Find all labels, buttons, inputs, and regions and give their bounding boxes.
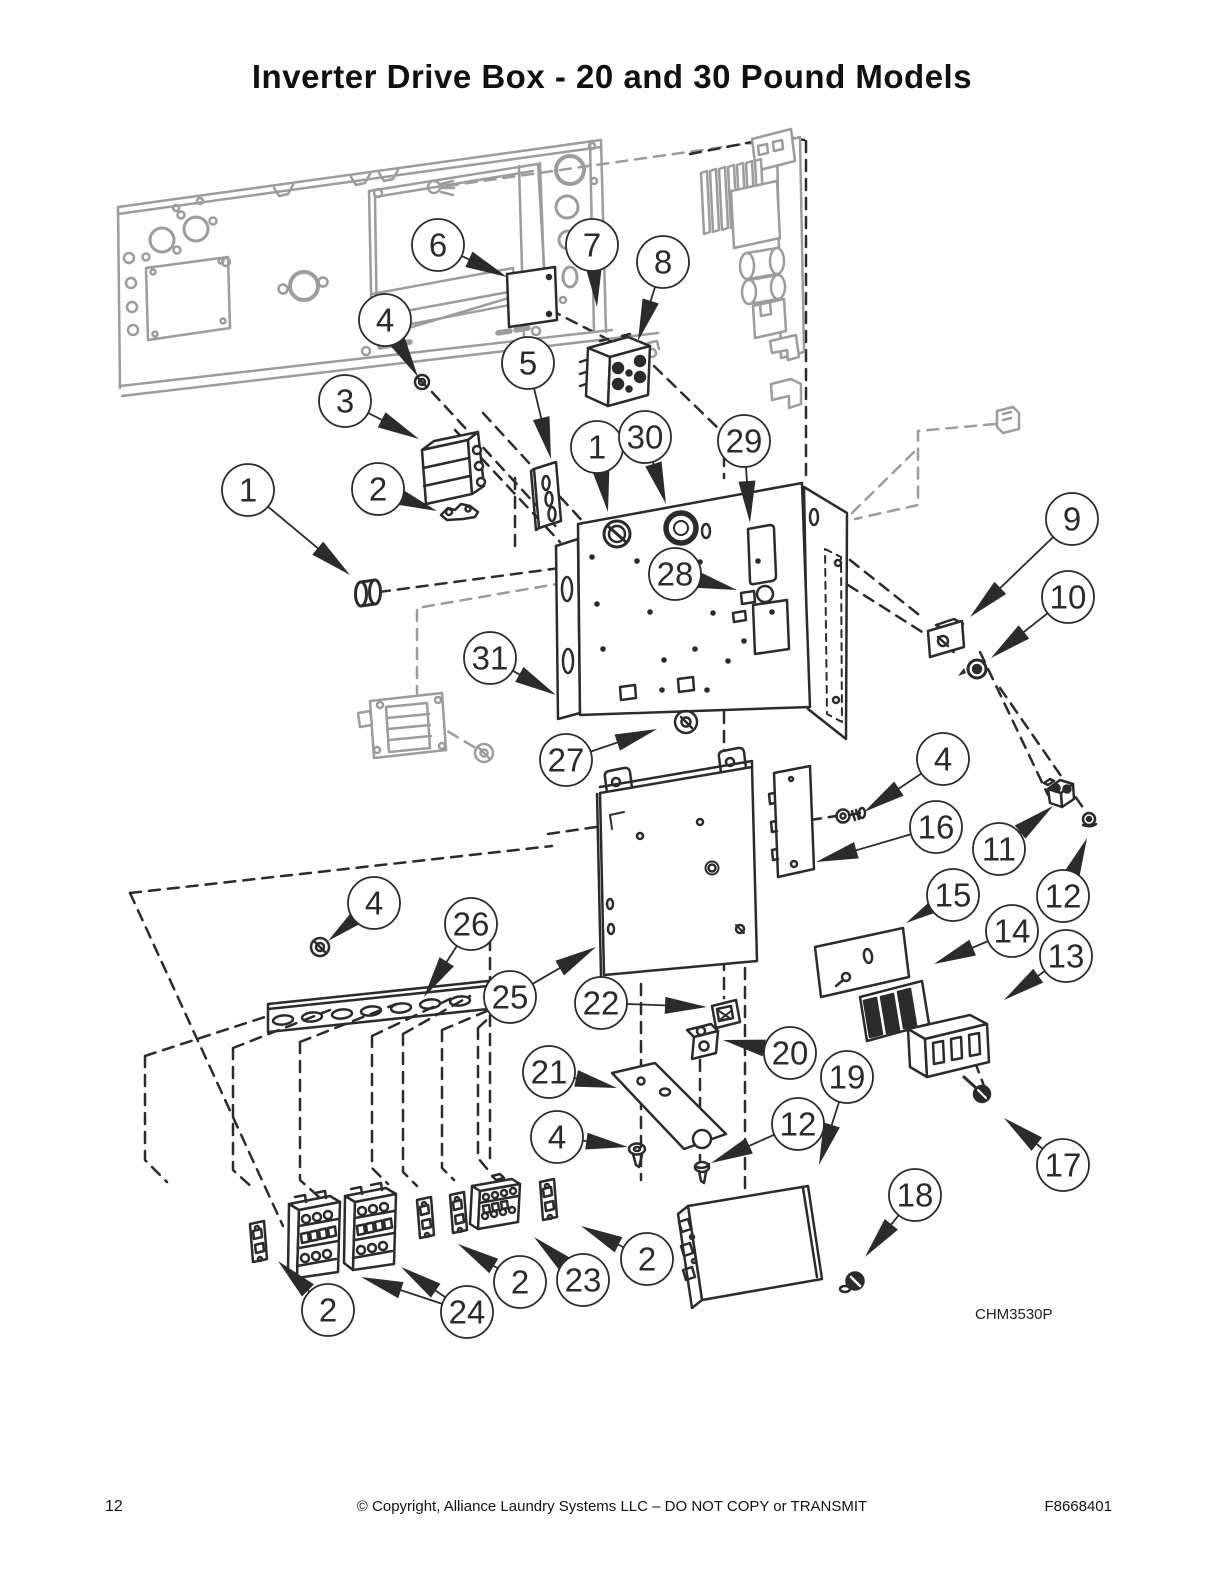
svg-text:31: 31 [472,640,509,677]
svg-text:24: 24 [449,1294,486,1331]
callout-27: 27 [540,729,657,786]
svg-text:2: 2 [369,471,387,508]
hinge-11-drawing [1044,779,1074,807]
svg-text:17: 17 [1045,1147,1082,1184]
callout-31: 31 [464,632,556,695]
callout-11: 11 [973,806,1053,875]
manual-page: Inverter Drive Box - 20 and 30 Pound Mod… [0,0,1224,1584]
svg-text:22: 22 [583,985,620,1022]
svg-text:28: 28 [657,556,694,593]
svg-text:3: 3 [336,383,354,420]
svg-text:1: 1 [588,429,606,466]
screw-10-drawing [958,660,986,678]
cover-plate-25-drawing [597,748,757,976]
screw-4-right-drawing [837,808,866,823]
callout-4: 4 [531,1111,628,1163]
exploded-diagram: 6784531302921910283127416111215141342625… [0,0,1224,1584]
box-19-drawing [678,1186,822,1308]
svg-text:19: 19 [829,1059,866,1096]
callout-17: 17 [1004,1118,1089,1191]
svg-text:27: 27 [548,742,585,779]
contactor-23-drawing [470,1174,520,1229]
svg-text:12: 12 [780,1106,817,1143]
screw-27-drawing [675,711,697,733]
callout-1: 1 [222,464,350,575]
svg-text:18: 18 [897,1177,934,1214]
contactor-24b-drawing [344,1183,396,1270]
svg-text:9: 9 [1063,501,1081,538]
callout-3: 3 [319,375,419,439]
svg-text:12: 12 [1045,878,1082,915]
screw-12-right-drawing [1083,813,1096,826]
bracket-plate-21-drawing [612,1063,726,1149]
svg-text:23: 23 [565,1262,602,1299]
bracket-20-drawing [687,1024,718,1059]
svg-text:16: 16 [918,809,955,846]
svg-text:8: 8 [654,244,672,281]
svg-text:4: 4 [934,741,952,778]
screw-17-drawing [964,1077,990,1102]
enclosure-31-drawing [556,483,847,739]
callout-12: 12 [1037,838,1089,922]
callout-6: 6 [412,219,507,277]
svg-text:25: 25 [492,979,529,1016]
svg-text:13: 13 [1048,938,1085,975]
svg-text:7: 7 [583,227,601,264]
callout-4: 4 [864,733,969,812]
rear-panel-drawing [118,140,659,396]
callout-12: 12 [711,1098,824,1163]
plate-15-drawing [815,928,909,997]
callout-21: 21 [523,1046,617,1098]
terminal-block-8-drawing [580,334,650,406]
svg-text:4: 4 [548,1119,566,1156]
clamp-22-drawing [712,1000,740,1028]
callout-23: 23 [534,1237,609,1306]
svg-text:21: 21 [531,1054,568,1091]
callout-16: 16 [816,801,962,862]
svg-text:2: 2 [319,1292,337,1329]
svg-text:14: 14 [994,913,1031,950]
bushing-1-drawing [356,580,381,606]
figure-code: CHM3530P [975,1306,1053,1323]
svg-text:29: 29 [726,423,763,460]
svg-text:15: 15 [935,877,972,914]
callout-30: 30 [619,411,671,504]
callout-20: 20 [723,1027,816,1079]
screw-12-bottom-drawing [695,1162,709,1183]
plate-6-drawing [507,267,557,327]
svg-text:4: 4 [376,302,394,339]
copyright-text: © Copyright, Alliance Laundry Systems LL… [0,1498,1224,1515]
document-number: F8668401 [1044,1498,1112,1515]
callout-18: 18 [865,1169,941,1257]
svg-text:10: 10 [1050,579,1087,616]
screw-18-drawing [840,1273,864,1293]
callout-15: 15 [906,869,979,923]
callout-24: 24 [361,1267,493,1338]
aux-contact-2-drawing [250,1221,267,1262]
svg-text:4: 4 [365,885,383,922]
callout-1: 1 [571,421,623,512]
svg-text:2: 2 [511,1264,529,1301]
bracket-9-drawing [928,619,964,657]
callout-19: 19 [819,1051,873,1165]
svg-text:1: 1 [239,472,257,509]
svg-text:6: 6 [429,227,447,264]
screw-4-left-drawing [311,938,329,956]
contactor-24a-drawing [288,1191,340,1278]
screw-4-top-drawing [415,375,429,389]
callout-10: 10 [991,571,1094,658]
callout-4: 4 [328,877,400,941]
svg-text:30: 30 [627,419,664,456]
din-channel-5-drawing [531,462,561,530]
callout-layer: 6784531302921910283127416111215141342625… [222,219,1098,1338]
svg-text:11: 11 [982,831,1016,868]
din-rail-26-drawing [268,981,488,1032]
contactor-3-drawing [422,432,485,504]
panel-16-drawing [769,766,814,877]
callout-8: 8 [637,236,689,341]
svg-text:2: 2 [638,1241,656,1278]
parts-drawing [250,267,1096,1308]
screw-4-bottom-drawing [629,1144,645,1168]
svg-text:26: 26 [453,906,490,943]
svg-text:20: 20 [772,1035,809,1072]
svg-text:5: 5 [519,345,537,382]
